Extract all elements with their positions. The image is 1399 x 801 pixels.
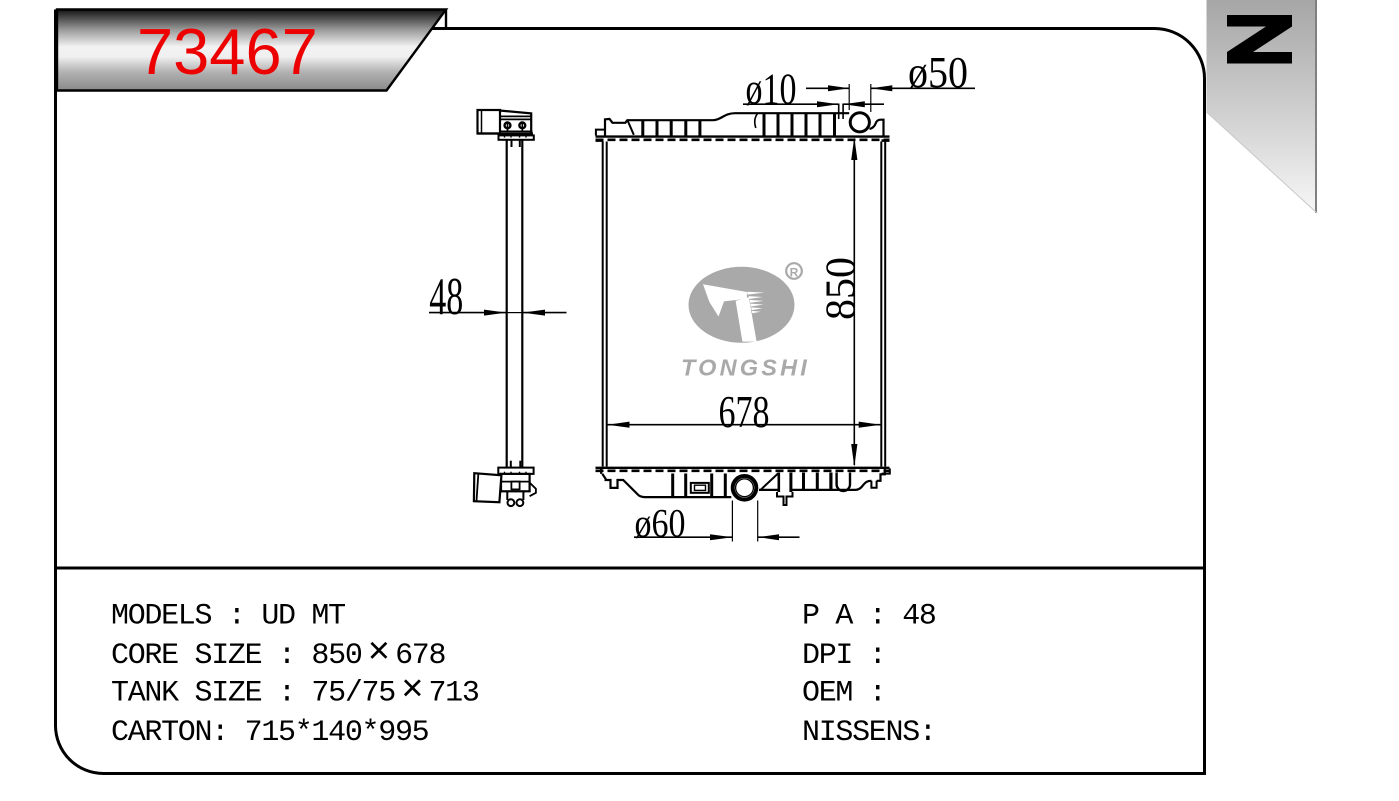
svg-text:P A : 48: P A : 48 bbox=[802, 600, 936, 634]
svg-text:CARTON: 715*140*995: CARTON: 715*140*995 bbox=[111, 716, 429, 750]
svg-text:850: 850 bbox=[819, 257, 865, 320]
svg-text:CORE SIZE : 850×678: CORE SIZE : 850×678 bbox=[111, 632, 445, 675]
svg-text:48: 48 bbox=[429, 268, 463, 326]
svg-text:R: R bbox=[790, 266, 799, 280]
svg-text:ø60: ø60 bbox=[635, 501, 686, 546]
svg-text:678: 678 bbox=[719, 386, 770, 437]
svg-text:TANK SIZE : 75/75×713: TANK SIZE : 75/75×713 bbox=[111, 670, 479, 713]
svg-text:OEM :: OEM : bbox=[802, 677, 886, 711]
svg-text:ø10: ø10 bbox=[746, 65, 797, 114]
svg-text:MODELS : UD MT: MODELS : UD MT bbox=[111, 600, 345, 634]
svg-text:NISSENS:: NISSENS: bbox=[802, 716, 936, 750]
svg-text:ø50: ø50 bbox=[908, 48, 968, 97]
svg-text:DPI :: DPI : bbox=[802, 639, 886, 673]
svg-text:73467: 73467 bbox=[137, 15, 318, 88]
svg-text:TONGSHI: TONGSHI bbox=[681, 355, 810, 381]
